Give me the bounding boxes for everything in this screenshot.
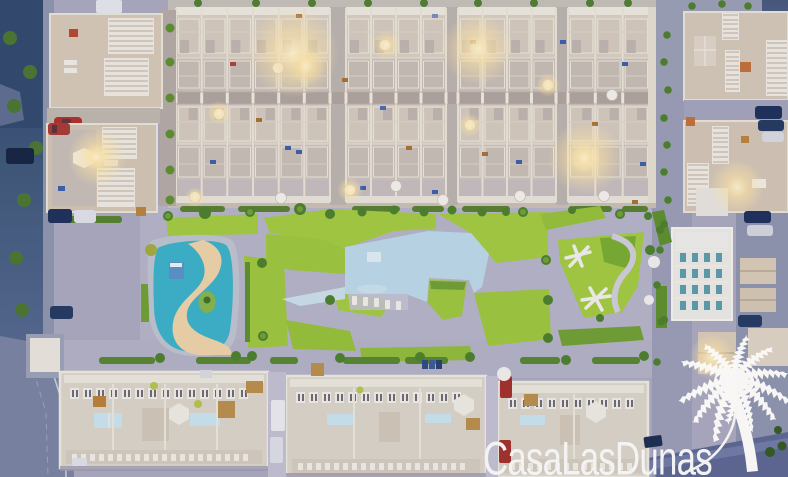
svg-text:CasaLasDunas: CasaLasDunas [483, 432, 712, 477]
